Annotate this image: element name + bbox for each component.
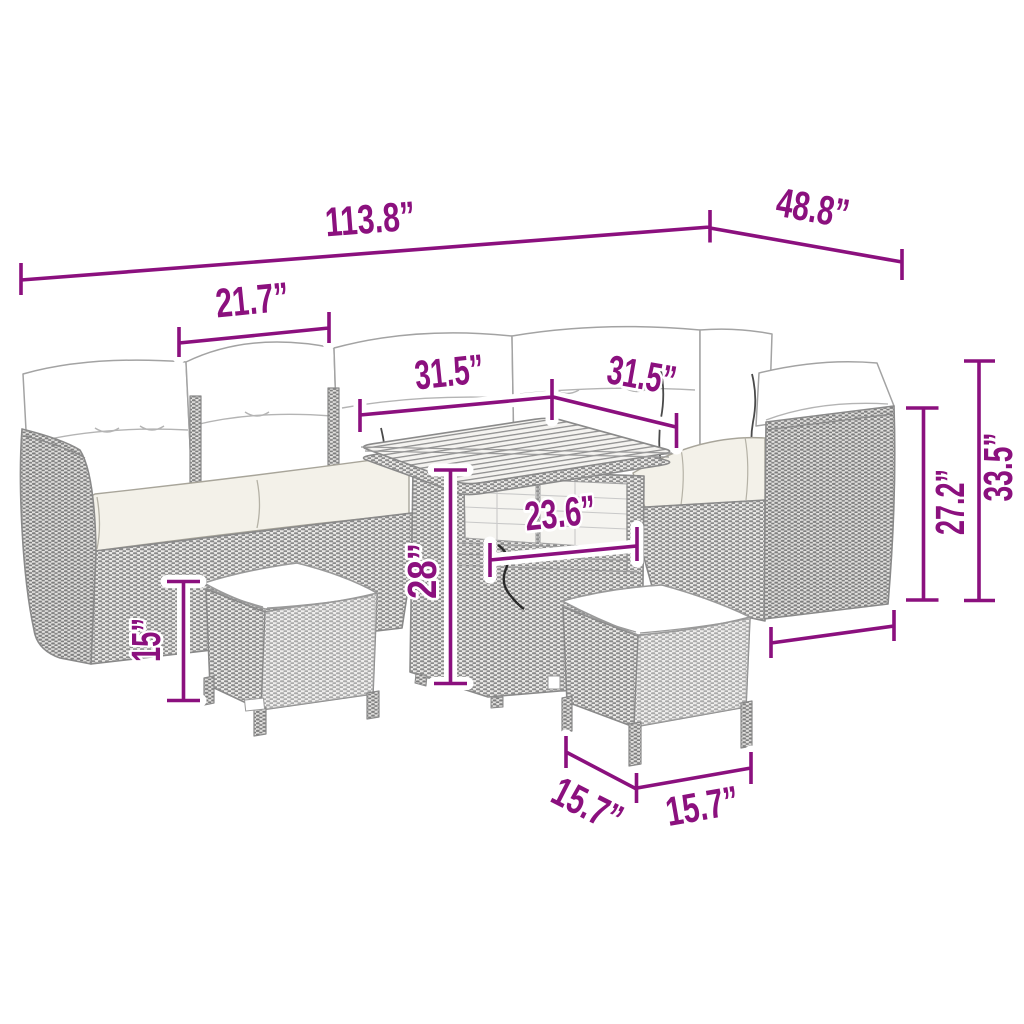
svg-text:15”: 15”: [123, 618, 169, 662]
svg-text:113.8”: 113.8”: [323, 193, 416, 246]
svg-text:31.5”: 31.5”: [412, 346, 485, 399]
svg-text:33.5”: 33.5”: [975, 433, 1021, 502]
svg-text:21.7”: 21.7”: [213, 273, 290, 326]
svg-text:28”: 28”: [399, 543, 445, 599]
svg-text:23.6”: 23.6”: [522, 486, 597, 539]
svg-text:27.2”: 27.2”: [927, 469, 973, 535]
